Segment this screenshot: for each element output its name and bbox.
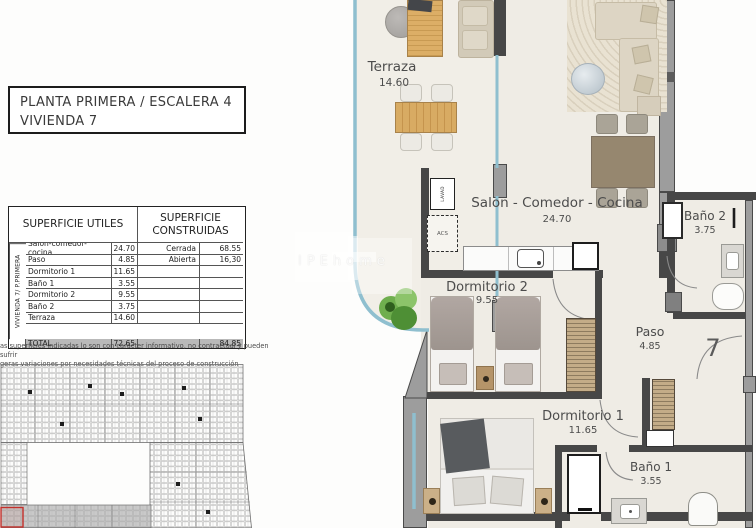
- unit-highlight: [1, 508, 23, 528]
- table-vertical-label: VIVIENDA 7/ P.PRIMERA: [9, 243, 26, 339]
- sofa-cushion: [632, 45, 652, 65]
- terrace-chair-icon: [431, 133, 453, 151]
- table-row-name: Dormitorio 1: [26, 266, 112, 278]
- sofa-cushion: [640, 5, 659, 24]
- dormitorio2-label: Dormitorio 2: [446, 281, 528, 294]
- oven-icon: [572, 242, 599, 270]
- terraza-area: 14.60: [379, 78, 409, 89]
- table-row-name: Baño 2: [26, 301, 112, 313]
- table-row-value: 3.55: [112, 278, 138, 290]
- site-plan: [0, 362, 252, 528]
- wardrobe-icon: [566, 318, 596, 392]
- acs-closet: ACS: [427, 215, 458, 252]
- terraza-label: Terraza: [368, 61, 417, 75]
- outdoor-sofa-cushion: [462, 30, 488, 50]
- bathroom2-door: [662, 202, 683, 239]
- table-row-value: 9.55: [112, 289, 138, 301]
- dormitorio2-area: 9.55: [476, 296, 498, 306]
- terrace-chair-icon: [400, 133, 422, 151]
- bathroom1-sink-icon: [611, 498, 647, 524]
- terrace-chair-icon: [431, 84, 453, 102]
- faucet-icon: [537, 261, 541, 265]
- dining-chair-icon: [626, 114, 648, 134]
- surface-areas-table: SUPERFICIE UTILES SUPERFICIE CONSTRUIDAS…: [8, 206, 246, 349]
- dining-chair-icon: [596, 114, 618, 134]
- single-bed-icon: [430, 296, 474, 392]
- plan-title-line2: VIVIENDA 7: [20, 113, 234, 132]
- nightstand-icon: [423, 488, 440, 514]
- banyo1-area: 3.55: [640, 477, 661, 487]
- paso-label: Paso: [636, 326, 665, 339]
- shower-icon: [567, 454, 601, 514]
- table-row-built-value: [200, 313, 243, 325]
- table-row-value: 14.60: [112, 313, 138, 325]
- table-row-built-name: [138, 278, 200, 290]
- banyo2-area: 3.75: [694, 226, 715, 236]
- table-row-built-name: [138, 289, 200, 301]
- table-row-built-value: [200, 278, 243, 290]
- floor-plan: LAVAD ACS: [345, 0, 756, 528]
- nightstand-icon: [535, 488, 552, 514]
- throw-blanket-icon: [440, 419, 490, 474]
- pillow-icon: [452, 476, 486, 506]
- unit-number: 7: [705, 336, 720, 360]
- table-row-name: Baño 1: [26, 278, 112, 290]
- sofa-chaise: [637, 96, 661, 116]
- floorplan-sheet: PLANTA PRIMERA / ESCALERA 4 VIVIENDA 7 S…: [0, 0, 756, 528]
- useful-surface-header: SUPERFICIE UTILES: [9, 207, 138, 243]
- table-row-value: 11.65: [112, 266, 138, 278]
- washer-label: LAVAD: [440, 186, 445, 202]
- table-row-built-value: [200, 301, 243, 313]
- table-row-built-name: [138, 301, 200, 313]
- title-box: PLANTA PRIMERA / ESCALERA 4 VIVIENDA 7: [8, 86, 246, 134]
- disclaimer-line1: as superficies indicadas lo son con cará…: [0, 342, 270, 360]
- side-table-icon: [571, 63, 605, 95]
- table-row-built-name: [138, 266, 200, 278]
- bathroom2-sink-icon: [721, 244, 744, 278]
- banyo1-label: Baño 1: [630, 461, 672, 473]
- banyo2-label: Baño 2: [684, 210, 726, 222]
- washer-closet: LAVAD: [430, 178, 455, 210]
- table-row-built-name: Abierta: [138, 255, 200, 267]
- hall-shelf: [646, 430, 674, 447]
- plant-icon: [375, 286, 423, 336]
- hall-closet-icon: [652, 379, 675, 430]
- table-row-value: 3.75: [112, 301, 138, 313]
- pillow-icon: [490, 476, 524, 507]
- double-bed-icon: [440, 418, 534, 514]
- toilet-icon: [688, 492, 718, 526]
- table-row-built-value: 16,30: [200, 255, 243, 267]
- outdoor-sofa-cushion: [462, 6, 488, 26]
- table-row-name: Terraza: [26, 313, 112, 325]
- acs-label: ACS: [437, 231, 448, 237]
- table-row-value: 24.70: [112, 243, 138, 255]
- plan-title-line1: PLANTA PRIMERA / ESCALERA 4: [20, 94, 234, 113]
- table-row-name: Salon-comedor-cocina: [26, 243, 112, 255]
- dormitorio1-label: Dormitorio 1: [542, 410, 624, 423]
- table-row-name: Dormitorio 2: [26, 289, 112, 301]
- terrace-table-icon: [395, 102, 457, 133]
- dormitorio1-area: 11.65: [569, 426, 598, 436]
- built-surface-header: SUPERFICIE CONSTRUIDAS: [138, 207, 243, 243]
- kitchen-sink-icon: [517, 249, 544, 268]
- dining-table-icon: [591, 136, 655, 188]
- bathtub-icon: [712, 283, 744, 310]
- table-row-built-value: [200, 289, 243, 301]
- salon-area: 24.70: [543, 215, 572, 225]
- nightstand-icon: [476, 366, 494, 390]
- table-row-built-value: 68.55: [200, 243, 243, 255]
- table-row-built-name: [138, 313, 200, 325]
- paso-area: 4.85: [639, 342, 660, 352]
- table-row-value: 4.85: [112, 255, 138, 267]
- single-bed-icon: [495, 296, 541, 392]
- table-row-built-name: Cerrada: [138, 243, 200, 255]
- salon-label: Salon - Comedor - Cocina: [471, 197, 643, 211]
- table-row-built-value: [200, 266, 243, 278]
- table-row-name: Paso: [26, 255, 112, 267]
